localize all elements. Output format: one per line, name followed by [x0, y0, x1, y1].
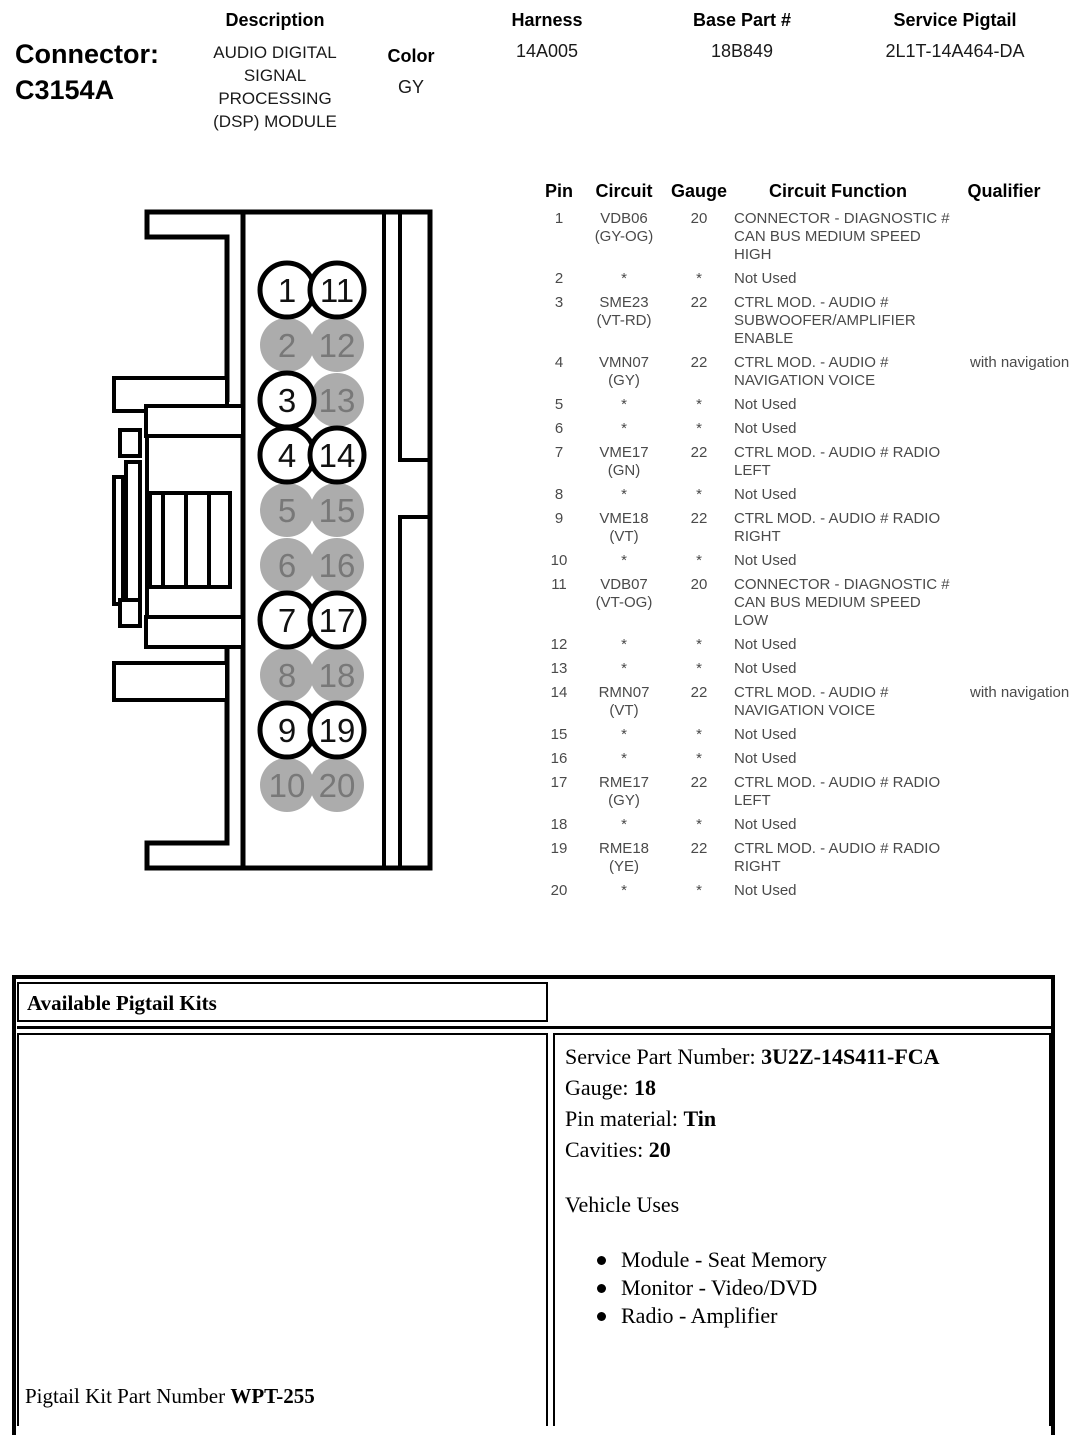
pin-table-row: 4 VMN07(GY) 22 CTRL MOD. - AUDIO # NAVIG… — [540, 354, 1068, 390]
pin-cavity-label: 14 — [319, 437, 356, 474]
harness-value: 14A005 — [487, 41, 607, 62]
cell-circuit: RMN07(VT) — [578, 684, 670, 720]
cell-circuit-color: (GY) — [608, 792, 640, 809]
color-block: Color GY — [383, 46, 439, 98]
cell-function: CTRL MOD. - AUDIO # RADIO LEFT — [728, 774, 954, 810]
header-function: Circuit Function — [728, 181, 948, 201]
pin-cavity-label: 9 — [278, 712, 296, 749]
pin-table-row: 15 * * Not Used — [540, 726, 1068, 744]
cell-circuit: * — [578, 726, 670, 744]
cell-circuit-color: (VT) — [609, 528, 638, 545]
cell-gauge: 22 — [670, 774, 728, 810]
cell-function: Not Used — [728, 660, 954, 678]
cell-function: CTRL MOD. - AUDIO # SUBWOOFER/AMPLIFIER … — [728, 294, 954, 348]
pin-cavity-label: 1 — [278, 272, 296, 309]
pin-table: Pin Circuit Gauge Circuit Function Quali… — [540, 181, 1068, 906]
cell-function: Not Used — [728, 396, 954, 414]
cell-qualifier — [954, 486, 1070, 504]
cell-qualifier — [954, 636, 1070, 654]
pin-cavity-label: 12 — [319, 327, 356, 364]
cell-circuit: RME18(YE) — [578, 840, 670, 876]
cell-pin: 19 — [540, 840, 578, 876]
vehicle-use-item: Module - Seat Memory — [597, 1246, 1049, 1274]
cell-gauge: * — [670, 636, 728, 654]
pigtail-kit-number: WPT-255 — [230, 1384, 314, 1408]
cell-circuit: RME17(GY) — [578, 774, 670, 810]
cell-circuit-color: (GY-OG) — [595, 228, 654, 245]
cell-circuit: VDB07(VT-OG) — [578, 576, 670, 630]
cell-circuit-color: (YE) — [609, 858, 639, 875]
cell-circuit-color: (VT-OG) — [596, 594, 653, 611]
pin-cavity-label: 8 — [278, 657, 296, 694]
connector-latch-cluster — [114, 378, 243, 700]
cell-gauge: * — [670, 816, 728, 834]
vehicle-use-text: Monitor - Video/DVD — [621, 1274, 817, 1302]
cell-qualifier — [954, 726, 1070, 744]
pin-cavity-label: 2 — [278, 327, 296, 364]
cell-circuit: * — [578, 636, 670, 654]
description-value: AUDIO DIGITAL SIGNAL PROCESSING (DSP) MO… — [205, 41, 345, 133]
harness-header: Harness — [487, 10, 607, 31]
cell-gauge: * — [670, 552, 728, 570]
cell-pin: 5 — [540, 396, 578, 414]
kit-gauge-label: Gauge: — [565, 1075, 634, 1100]
pin-table-row: 18 * * Not Used — [540, 816, 1068, 834]
cell-function: Not Used — [728, 882, 954, 900]
pin-cavity-label: 17 — [319, 602, 356, 639]
cell-circuit: * — [578, 486, 670, 504]
cell-gauge: 22 — [670, 840, 728, 876]
cell-circuit: * — [578, 396, 670, 414]
cell-function: Not Used — [728, 816, 954, 834]
cell-function: Not Used — [728, 750, 954, 768]
cell-function: CTRL MOD. - AUDIO # RADIO LEFT — [728, 444, 954, 480]
pin-table-row: 19 RME18(YE) 22 CTRL MOD. - AUDIO # RADI… — [540, 840, 1068, 876]
pin-table-row: 5 * * Not Used — [540, 396, 1068, 414]
cell-function: Not Used — [728, 726, 954, 744]
cell-qualifier — [954, 660, 1070, 678]
bullet-icon — [597, 1312, 606, 1321]
cell-pin: 13 — [540, 660, 578, 678]
pin-table-rows: 1 VDB06(GY-OG) 20 CONNECTOR - DIAGNOSTIC… — [540, 210, 1068, 900]
cell-pin: 14 — [540, 684, 578, 720]
base-part-block: Base Part # 18B849 — [672, 10, 812, 62]
cell-pin: 15 — [540, 726, 578, 744]
cell-circuit: VMN07(GY) — [578, 354, 670, 390]
pigtail-kit-part-number-line: Pigtail Kit Part Number WPT-255 — [25, 1384, 315, 1409]
cell-function: Not Used — [728, 552, 954, 570]
cell-qualifier — [954, 210, 1070, 264]
cell-pin: 8 — [540, 486, 578, 504]
pin-table-row: 7 VME17(GN) 22 CTRL MOD. - AUDIO # RADIO… — [540, 444, 1068, 480]
base-part-value: 18B849 — [672, 41, 812, 62]
cell-gauge: 22 — [670, 510, 728, 546]
header-circuit: Circuit — [578, 181, 670, 201]
pin-cavity-label: 7 — [278, 602, 296, 639]
cell-pin: 12 — [540, 636, 578, 654]
pigtail-kits-left-cell — [17, 1033, 548, 1426]
cell-circuit: * — [578, 420, 670, 438]
pin-table-row: 10 * * Not Used — [540, 552, 1068, 570]
service-pigtail-header: Service Pigtail — [860, 10, 1050, 31]
pin-cavity-label: 10 — [269, 767, 306, 804]
cell-pin: 16 — [540, 750, 578, 768]
harness-block: Harness 14A005 — [487, 10, 607, 62]
pin-table-row: 16 * * Not Used — [540, 750, 1068, 768]
cell-qualifier: with navigation — [954, 684, 1070, 720]
service-part-number-line: Service Part Number: 3U2Z-14S411-FCA — [565, 1041, 1049, 1072]
description-block: Description AUDIO DIGITAL SIGNAL PROCESS… — [205, 10, 345, 133]
cell-circuit: * — [578, 816, 670, 834]
service-pigtail-value: 2L1T-14A464-DA — [860, 41, 1050, 62]
pin-table-row: 17 RME17(GY) 22 CTRL MOD. - AUDIO # RADI… — [540, 774, 1068, 810]
pin-cavity-label: 11 — [320, 272, 354, 309]
cell-circuit: * — [578, 750, 670, 768]
pin-table-row: 6 * * Not Used — [540, 420, 1068, 438]
cell-circuit-color: (VT) — [609, 702, 638, 719]
color-header: Color — [383, 46, 439, 67]
cell-circuit: * — [578, 882, 670, 900]
base-part-header: Base Part # — [672, 10, 812, 31]
cell-qualifier — [954, 444, 1070, 480]
pin-material-value: Tin — [684, 1106, 717, 1131]
cell-pin: 4 — [540, 354, 578, 390]
cell-gauge: * — [670, 660, 728, 678]
pin-table-row: 14 RMN07(VT) 22 CTRL MOD. - AUDIO # NAVI… — [540, 684, 1068, 720]
kit-gauge-value: 18 — [634, 1075, 656, 1100]
cell-gauge: 22 — [670, 444, 728, 480]
cell-circuit: * — [578, 270, 670, 288]
cell-pin: 11 — [540, 576, 578, 630]
connector-title: Connector: C3154A — [15, 36, 159, 108]
cell-function: Not Used — [728, 420, 954, 438]
cell-circuit-color: (VT-RD) — [597, 312, 652, 329]
description-header: Description — [205, 10, 345, 31]
cell-qualifier — [954, 750, 1070, 768]
cavities-line: Cavities: 20 — [565, 1134, 1049, 1165]
cell-qualifier — [954, 510, 1070, 546]
cell-qualifier — [954, 294, 1070, 348]
cell-pin: 18 — [540, 816, 578, 834]
pin-table-header: Pin Circuit Gauge Circuit Function Quali… — [540, 181, 1068, 201]
cell-gauge: * — [670, 882, 728, 900]
pin-table-row: 2 * * Not Used — [540, 270, 1068, 288]
cell-pin: 20 — [540, 882, 578, 900]
cell-gauge: * — [670, 270, 728, 288]
color-value: GY — [383, 77, 439, 98]
cell-qualifier — [954, 882, 1070, 900]
cell-function: CTRL MOD. - AUDIO # RADIO RIGHT — [728, 510, 954, 546]
pin-table-row: 1 VDB06(GY-OG) 20 CONNECTOR - DIAGNOSTIC… — [540, 210, 1068, 264]
header-qualifier: Qualifier — [948, 181, 1060, 201]
cell-function: CTRL MOD. - AUDIO # NAVIGATION VOICE — [728, 354, 954, 390]
pin-table-row: 9 VME18(VT) 22 CTRL MOD. - AUDIO # RADIO… — [540, 510, 1068, 546]
bullet-icon — [597, 1256, 606, 1265]
pin-cavity-label: 18 — [319, 657, 356, 694]
vehicle-use-text: Module - Seat Memory — [621, 1246, 827, 1274]
cell-circuit: * — [578, 660, 670, 678]
service-pigtail-block: Service Pigtail 2L1T-14A464-DA — [860, 10, 1050, 62]
cell-circuit: VDB06(GY-OG) — [578, 210, 670, 264]
connector-id: C3154A — [15, 72, 159, 108]
cell-function: CONNECTOR - DIAGNOSTIC # CAN BUS MEDIUM … — [728, 576, 954, 630]
pin-table-row: 20 * * Not Used — [540, 882, 1068, 900]
cell-gauge: * — [670, 486, 728, 504]
cell-qualifier — [954, 552, 1070, 570]
pin-table-row: 12 * * Not Used — [540, 636, 1068, 654]
pin-cavity-label: 19 — [319, 712, 356, 749]
cell-gauge: 22 — [670, 354, 728, 390]
cell-pin: 7 — [540, 444, 578, 480]
cell-pin: 2 — [540, 270, 578, 288]
cell-gauge: * — [670, 750, 728, 768]
cell-pin: 9 — [540, 510, 578, 546]
cell-qualifier — [954, 816, 1070, 834]
cell-qualifier — [954, 420, 1070, 438]
cell-circuit: SME23(VT-RD) — [578, 294, 670, 348]
connector-face-diagram: 2568101213151618201347911141719 — [105, 200, 445, 890]
cell-gauge: * — [670, 420, 728, 438]
pin-cavity-label: 5 — [278, 492, 296, 529]
vehicle-use-text: Radio - Amplifier — [621, 1302, 777, 1330]
pin-table-row: 3 SME23(VT-RD) 22 CTRL MOD. - AUDIO # SU… — [540, 294, 1068, 348]
pin-cavity-label: 13 — [319, 382, 356, 419]
cell-pin: 1 — [540, 210, 578, 264]
pin-cavity-label: 16 — [319, 547, 356, 584]
cell-circuit: * — [578, 552, 670, 570]
cell-pin: 3 — [540, 294, 578, 348]
cavities-label: Cavities: — [565, 1137, 649, 1162]
cell-qualifier: with navigation — [954, 354, 1070, 390]
vehicle-uses-list: Module - Seat MemoryMonitor - Video/DVDR… — [565, 1246, 1049, 1330]
cell-qualifier — [954, 396, 1070, 414]
pin-material-label: Pin material: — [565, 1106, 684, 1131]
pigtail-kits-title: Available Pigtail Kits — [17, 982, 548, 1022]
pigtail-kit-details: Service Part Number: 3U2Z-14S411-FCA Gau… — [553, 1033, 1051, 1426]
cell-qualifier — [954, 840, 1070, 876]
cell-function: CONNECTOR - DIAGNOSTIC # CAN BUS MEDIUM … — [728, 210, 954, 264]
cell-function: Not Used — [728, 486, 954, 504]
cell-circuit-color: (GY) — [608, 372, 640, 389]
cell-gauge: 20 — [670, 576, 728, 630]
pin-cavity-label: 15 — [319, 492, 356, 529]
cell-gauge: 22 — [670, 684, 728, 720]
kit-gauge-line: Gauge: 18 — [565, 1072, 1049, 1103]
cell-circuit: VME17(GN) — [578, 444, 670, 480]
pin-table-row: 8 * * Not Used — [540, 486, 1068, 504]
cell-gauge: 22 — [670, 294, 728, 348]
vehicle-use-item: Monitor - Video/DVD — [597, 1274, 1049, 1302]
pin-table-row: 11 VDB07(VT-OG) 20 CONNECTOR - DIAGNOSTI… — [540, 576, 1068, 630]
cell-qualifier — [954, 270, 1070, 288]
cell-gauge: 20 — [670, 210, 728, 264]
connector-label: Connector: — [15, 36, 159, 72]
header-gauge: Gauge — [670, 181, 728, 201]
cell-function: CTRL MOD. - AUDIO # RADIO RIGHT — [728, 840, 954, 876]
service-part-number-label: Service Part Number: — [565, 1044, 761, 1069]
cell-qualifier — [954, 576, 1070, 630]
pigtail-box-divider — [17, 1026, 1051, 1029]
cell-gauge: * — [670, 726, 728, 744]
pigtail-kit-label: Pigtail Kit Part Number — [25, 1384, 230, 1408]
header-pin: Pin — [540, 181, 578, 201]
cell-function: Not Used — [728, 636, 954, 654]
vehicle-use-item: Radio - Amplifier — [597, 1302, 1049, 1330]
cavities-value: 20 — [649, 1137, 671, 1162]
cell-qualifier — [954, 774, 1070, 810]
cell-gauge: * — [670, 396, 728, 414]
connector-pinout-sheet: { "header": { "connector_label": "Connec… — [0, 0, 1070, 1426]
cell-circuit: VME18(VT) — [578, 510, 670, 546]
cell-circuit-color: (GN) — [608, 462, 641, 479]
cell-pin: 17 — [540, 774, 578, 810]
pin-cavity-label: 4 — [278, 437, 296, 474]
vehicle-uses-label: Vehicle Uses — [565, 1189, 1049, 1220]
bullet-icon — [597, 1284, 606, 1293]
pin-cavity-label: 20 — [319, 767, 356, 804]
service-part-number-value: 3U2Z-14S411-FCA — [761, 1044, 939, 1069]
cell-function: CTRL MOD. - AUDIO # NAVIGATION VOICE — [728, 684, 954, 720]
pin-cavity-label: 3 — [278, 382, 296, 419]
cell-function: Not Used — [728, 270, 954, 288]
pin-material-line: Pin material: Tin — [565, 1103, 1049, 1134]
cell-pin: 10 — [540, 552, 578, 570]
pin-cavity-label: 6 — [278, 547, 296, 584]
cell-pin: 6 — [540, 420, 578, 438]
pin-table-row: 13 * * Not Used — [540, 660, 1068, 678]
